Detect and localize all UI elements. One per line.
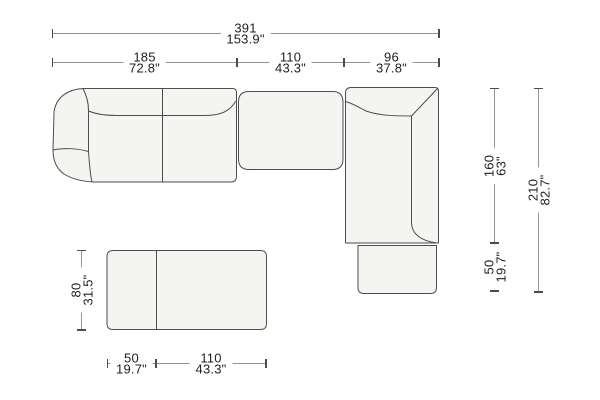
tick-mark bbox=[490, 290, 499, 291]
dim-value-inch: 37.8" bbox=[376, 63, 407, 75]
dim-left-section-width: 185 72.8" bbox=[52, 58, 237, 67]
dim-value-inch: 43.3" bbox=[196, 364, 227, 376]
tick-mark bbox=[77, 329, 86, 330]
sofa-left-section bbox=[53, 89, 237, 183]
tick-mark bbox=[52, 29, 53, 38]
dim-label: 110 43.3" bbox=[190, 351, 233, 376]
dim-label: 185 72.8" bbox=[123, 50, 166, 75]
dim-label: 50 19.7" bbox=[482, 245, 507, 290]
dim-value-inch: 72.8" bbox=[129, 63, 160, 75]
dim-value-inch: 82.7" bbox=[539, 175, 551, 206]
sofa-dimension-diagram: 391 153.9" 185 72.8" 110 43.3" 96 37.8" bbox=[0, 0, 600, 400]
dim-bench-depth: 80 31.5" bbox=[77, 250, 86, 330]
sofa-middle-bench bbox=[239, 92, 344, 170]
tick-mark bbox=[265, 359, 266, 368]
sofa-corner-chaise bbox=[346, 88, 439, 244]
dim-label: 160 63" bbox=[482, 147, 507, 183]
tick-mark bbox=[534, 291, 543, 292]
dim-value-inch: 43.3" bbox=[275, 63, 306, 75]
dim-bench-right-width: 110 43.3" bbox=[156, 359, 266, 368]
dim-label: 80 31.5" bbox=[69, 268, 94, 313]
tick-mark bbox=[107, 359, 108, 368]
dim-value-inch: 19.7" bbox=[116, 364, 147, 376]
dim-bench-left-width: 50 19.7" bbox=[107, 359, 156, 368]
dim-total-width: 391 153.9" bbox=[52, 29, 439, 38]
dim-label: 96 37.8" bbox=[370, 50, 413, 75]
dim-label: 50 19.7" bbox=[110, 351, 153, 376]
dim-right-section-width: 96 37.8" bbox=[344, 58, 439, 67]
tick-mark bbox=[156, 359, 157, 368]
tick-mark bbox=[534, 88, 543, 89]
tick-mark bbox=[344, 58, 345, 67]
dim-value-inch: 31.5" bbox=[82, 275, 94, 306]
tick-mark bbox=[490, 88, 499, 89]
dim-total-depth: 210 82.7" bbox=[534, 88, 543, 292]
dim-chaise-depth: 160 63" bbox=[490, 88, 499, 243]
dim-label: 391 153.9" bbox=[220, 21, 270, 46]
dim-value-inch: 19.7" bbox=[495, 252, 507, 283]
sofa-bench bbox=[107, 251, 267, 330]
tick-mark bbox=[77, 250, 86, 251]
dim-chaise-ottoman-depth: 50 19.7" bbox=[490, 243, 499, 291]
tick-mark bbox=[52, 58, 53, 67]
dim-label: 110 43.3" bbox=[269, 50, 312, 75]
dim-value-inch: 63" bbox=[495, 154, 507, 176]
tick-mark bbox=[438, 29, 439, 38]
dim-value-inch: 153.9" bbox=[226, 34, 264, 46]
sofa-chaise-ottoman bbox=[358, 246, 437, 294]
dim-middle-section-width: 110 43.3" bbox=[237, 58, 344, 67]
dim-label: 210 82.7" bbox=[526, 168, 551, 213]
tick-mark bbox=[438, 58, 439, 67]
tick-mark bbox=[237, 58, 238, 67]
